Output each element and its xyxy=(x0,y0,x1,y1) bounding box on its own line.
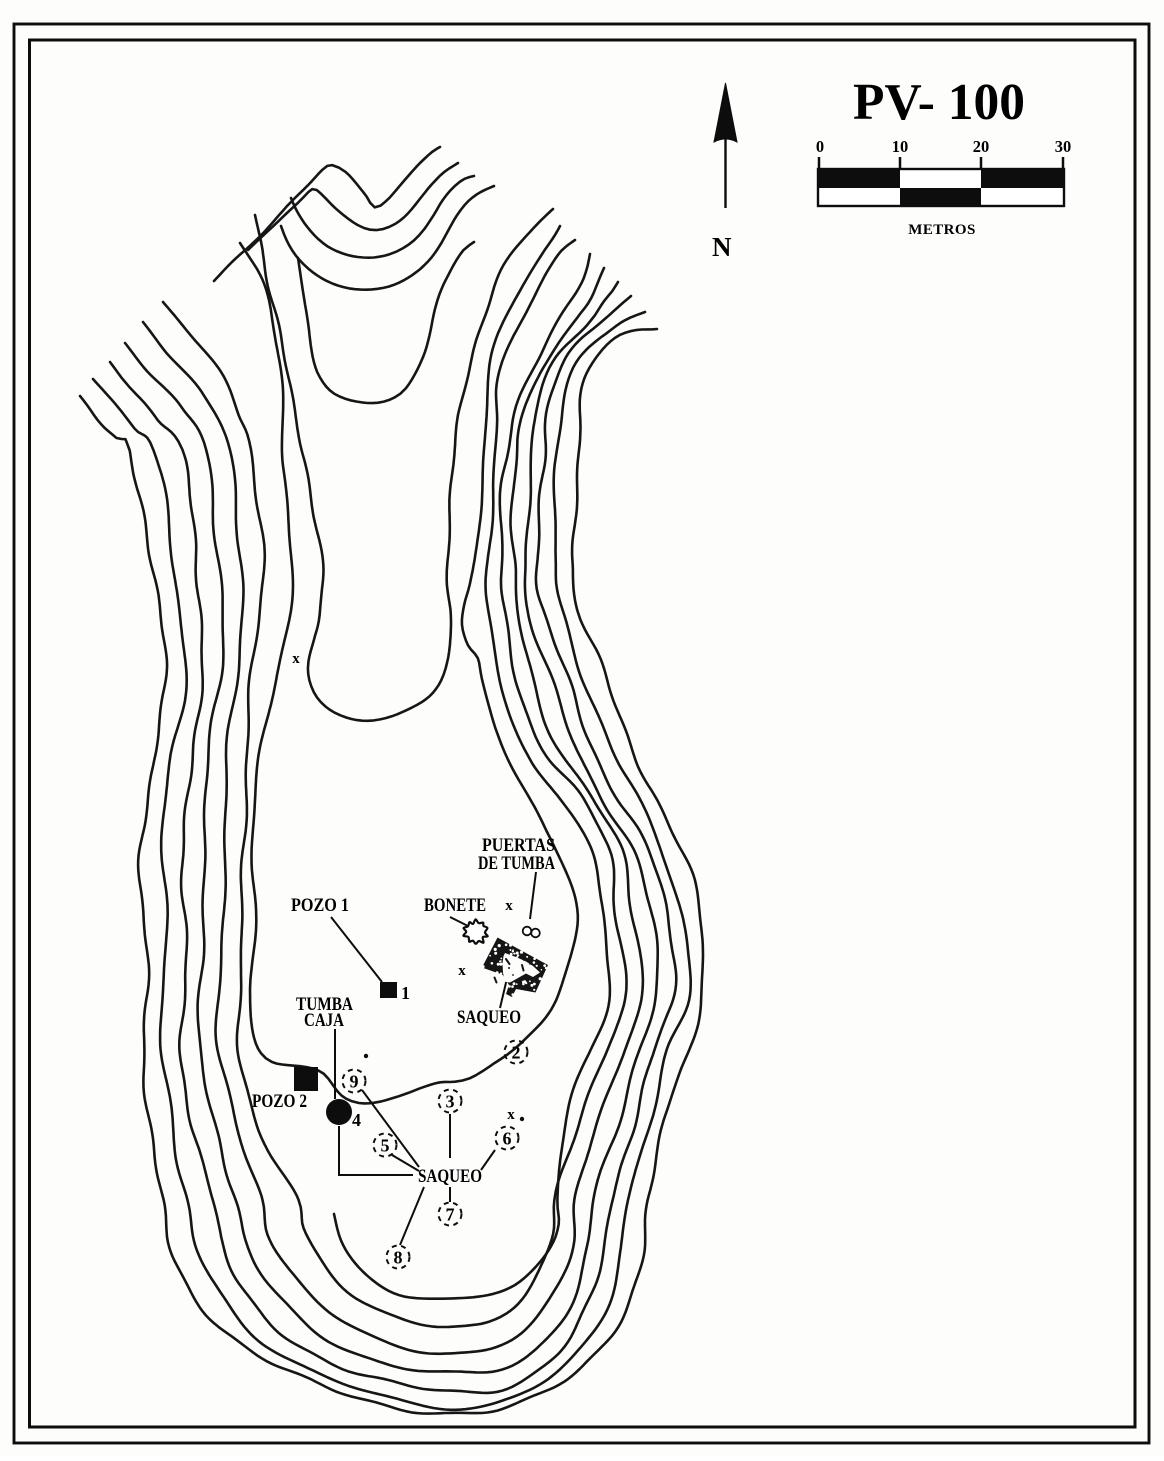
svg-text:30: 30 xyxy=(1055,137,1072,156)
svg-text:8: 8 xyxy=(394,1248,403,1268)
svg-text:x: x xyxy=(507,1107,515,1123)
svg-text:POZO 1: POZO 1 xyxy=(291,895,349,916)
svg-text:x: x xyxy=(505,898,513,914)
svg-text:N: N xyxy=(712,232,732,262)
svg-text:2: 2 xyxy=(512,1043,521,1063)
svg-text:10: 10 xyxy=(892,137,909,156)
svg-text:CAJA: CAJA xyxy=(304,1010,344,1031)
svg-text:9: 9 xyxy=(350,1072,359,1092)
svg-text:3: 3 xyxy=(446,1092,455,1112)
svg-text:DE TUMBA: DE TUMBA xyxy=(478,853,555,874)
svg-text:0: 0 xyxy=(816,137,824,156)
svg-text:6: 6 xyxy=(503,1129,512,1149)
svg-text:x: x xyxy=(292,651,300,667)
svg-text:SAQUEO: SAQUEO xyxy=(457,1007,521,1028)
svg-text:PV- 100: PV- 100 xyxy=(853,74,1025,131)
svg-text:5: 5 xyxy=(381,1136,390,1156)
svg-text:20: 20 xyxy=(973,137,990,156)
svg-text:SAQUEO: SAQUEO xyxy=(418,1166,482,1187)
svg-text:x: x xyxy=(458,963,466,979)
svg-text:1: 1 xyxy=(401,983,410,1003)
svg-text:POZO 2: POZO 2 xyxy=(252,1091,307,1112)
svg-text:4: 4 xyxy=(352,1110,361,1130)
svg-text:METROS: METROS xyxy=(908,222,975,238)
svg-text:BONETE: BONETE xyxy=(424,895,486,916)
svg-text:7: 7 xyxy=(446,1205,455,1225)
